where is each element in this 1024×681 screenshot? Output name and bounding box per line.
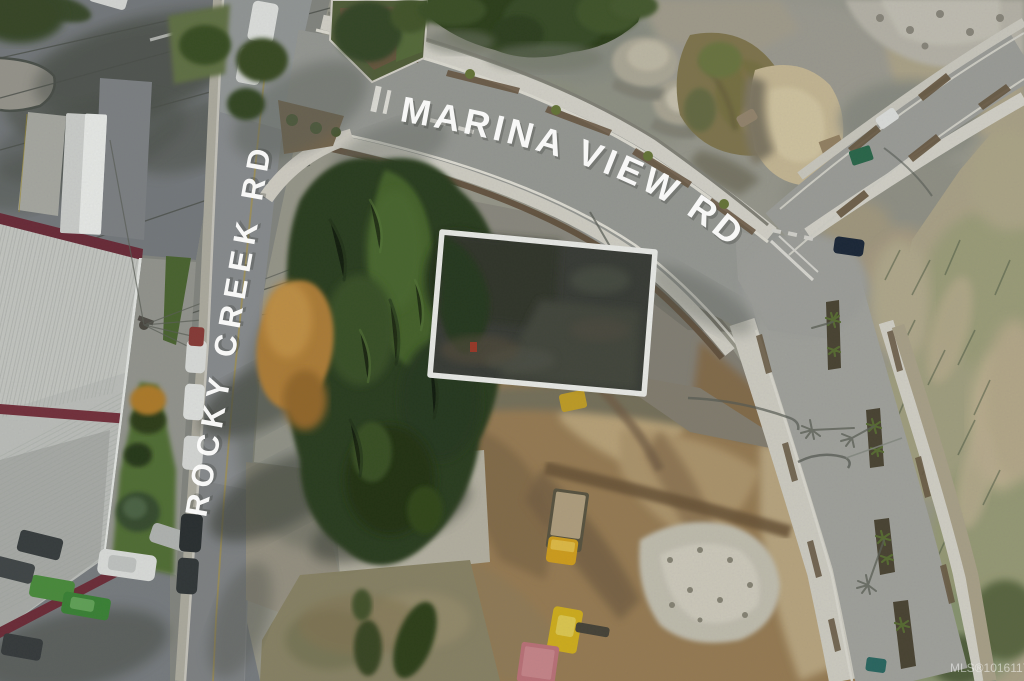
- svg-text:MLS®1016117: MLS®1016117: [950, 661, 1024, 675]
